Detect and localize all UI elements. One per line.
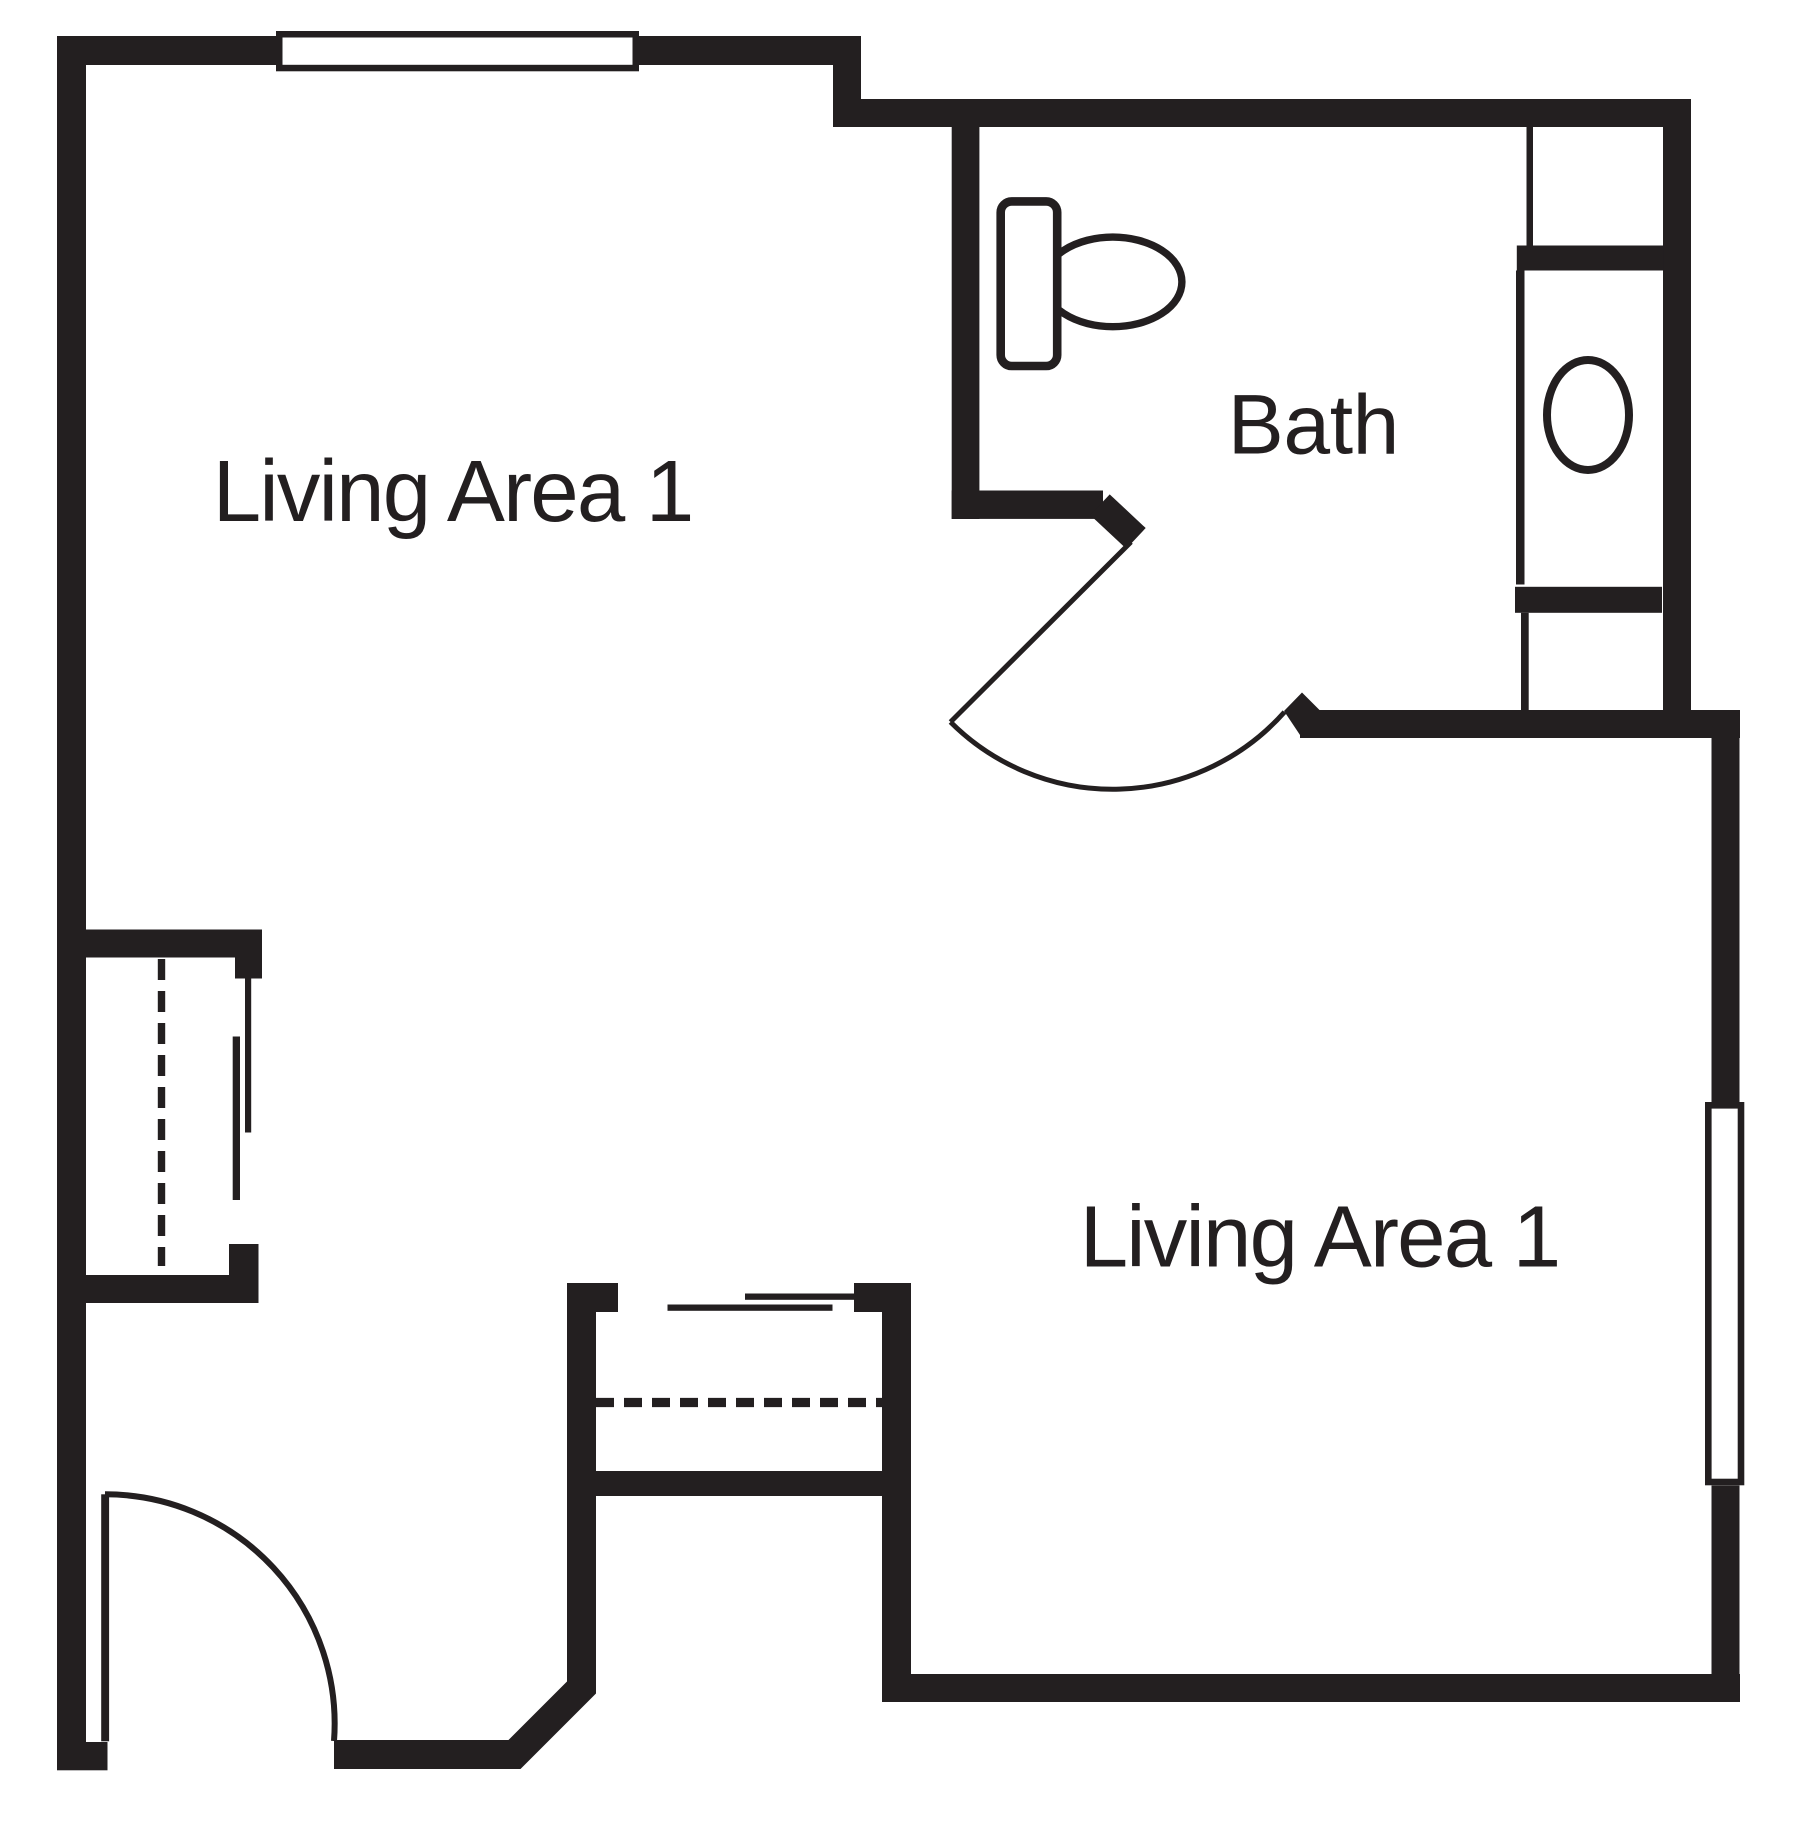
svg-text:Living Area 1: Living Area 1 [213,443,693,540]
svg-text:Bath: Bath [1228,377,1399,471]
svg-text:Living Area 1: Living Area 1 [1080,1189,1560,1286]
